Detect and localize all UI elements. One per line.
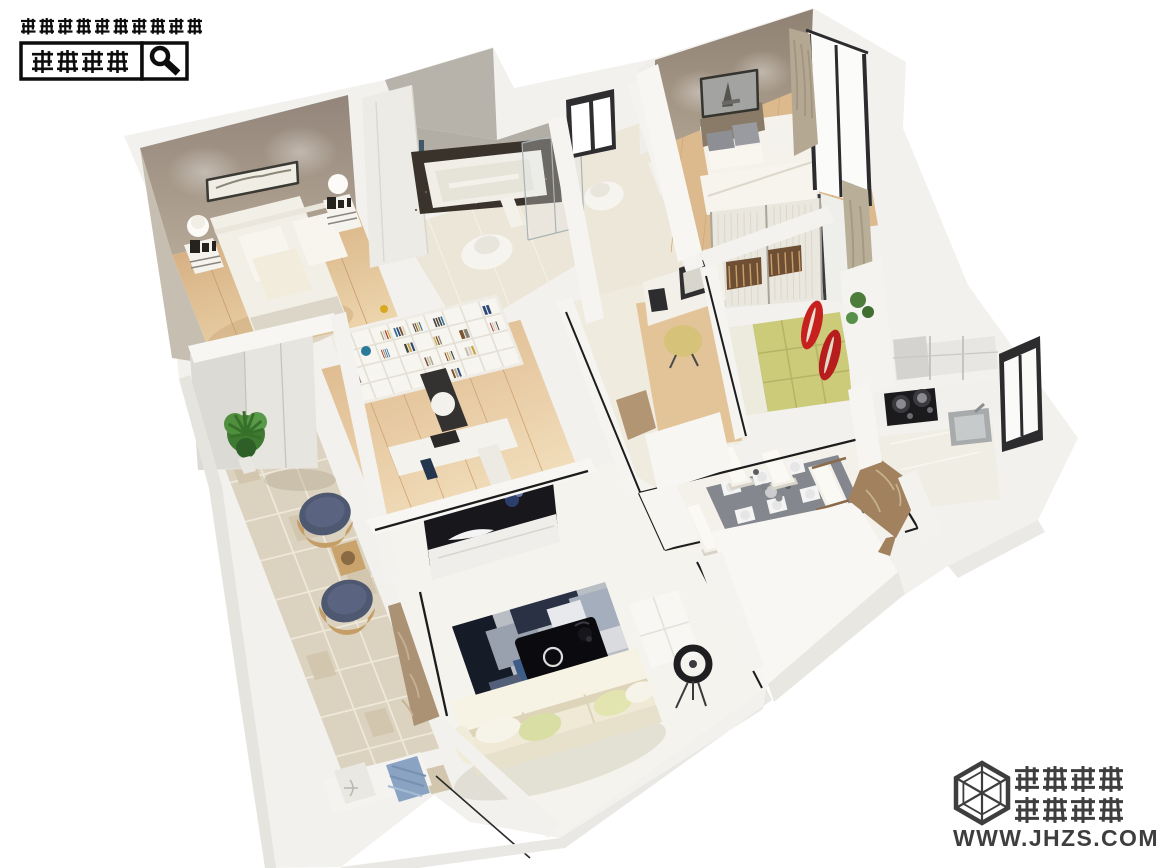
svg-text:WWW.JHZS.COM: WWW.JHZS.COM bbox=[953, 825, 1158, 851]
